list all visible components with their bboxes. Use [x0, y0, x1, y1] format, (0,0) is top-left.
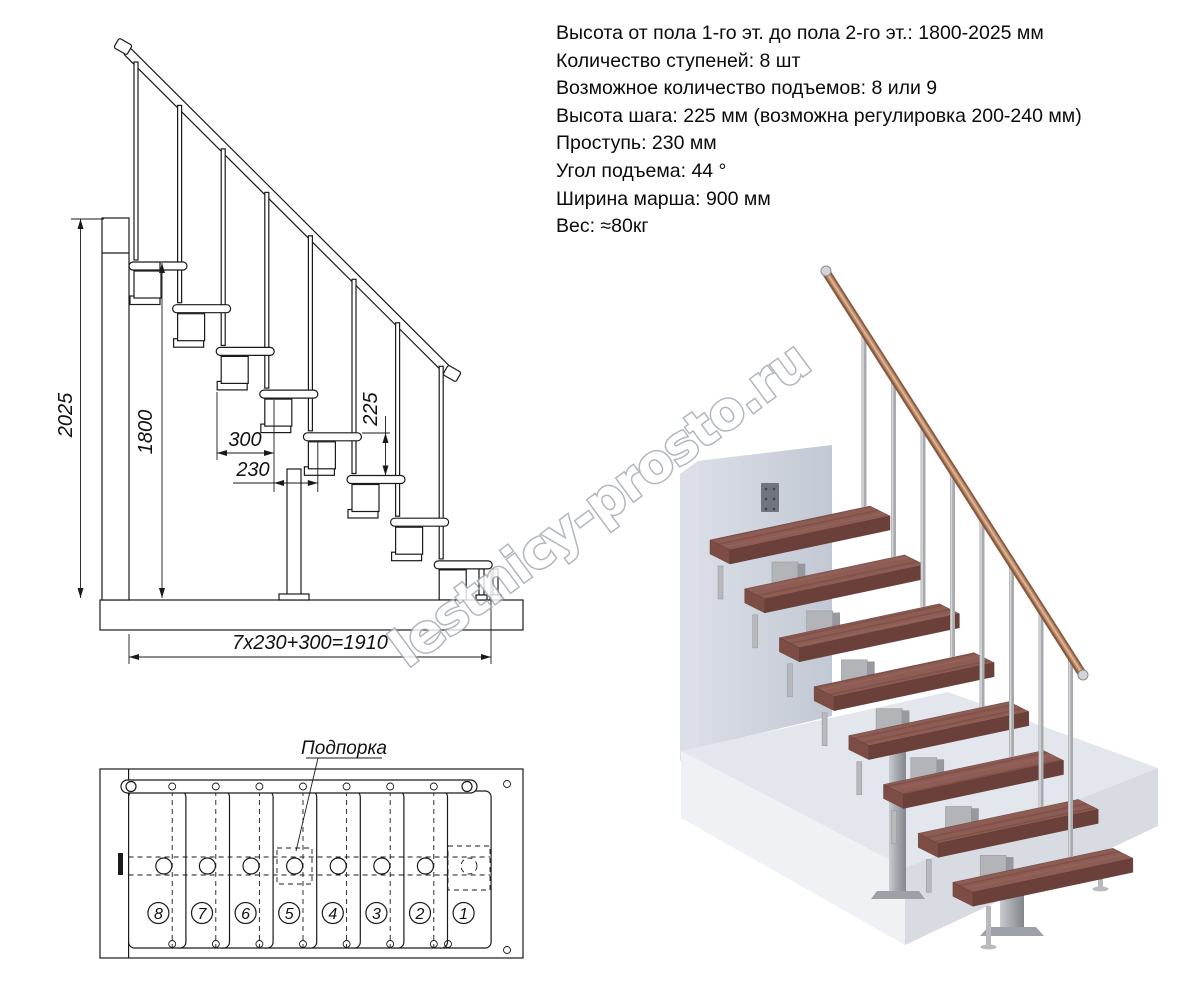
plan-wall-anchor	[118, 853, 123, 875]
support-label: Подпорка	[301, 738, 387, 759]
svg-text:230: 230	[235, 459, 269, 481]
svg-text:3: 3	[372, 906, 381, 923]
upper-floor-column	[102, 218, 129, 600]
svg-text:1: 1	[459, 906, 468, 923]
svg-text:300: 300	[228, 429, 261, 451]
support-post-side	[279, 469, 309, 600]
svg-text:7x230+300=1910: 7x230+300=1910	[232, 632, 388, 654]
plan-handrail	[121, 780, 477, 793]
dim-rise: 225	[360, 391, 390, 475]
dim-clear-height: 1800	[135, 263, 165, 598]
plan-view-drawing: 8 7 6 5 4 3 2 1 Подпорка	[100, 738, 523, 958]
svg-text:225: 225	[360, 391, 382, 426]
wall-mount-plate	[761, 483, 779, 512]
svg-text:8: 8	[154, 906, 163, 923]
staircase-diagram-page: Высота от пола 1-го эт. до пола 2-го эт.…	[0, 0, 1190, 992]
svg-text:2: 2	[415, 906, 425, 923]
svg-text:7: 7	[198, 906, 208, 923]
svg-text:5: 5	[285, 906, 294, 923]
dim-total-height: 2025	[55, 219, 104, 598]
handrail-side	[114, 38, 461, 382]
handrail-cap-top	[821, 266, 831, 276]
svg-text:2025: 2025	[55, 392, 77, 438]
handrail-cap-bottom	[1078, 670, 1088, 680]
module-underplates	[130, 296, 422, 561]
svg-text:4: 4	[328, 906, 337, 923]
svg-text:1800: 1800	[135, 410, 157, 455]
side-view-drawing: 2025 1800 300 230 225 7x2	[55, 38, 523, 664]
plan-treads	[129, 791, 491, 948]
svg-text:6: 6	[241, 906, 250, 923]
